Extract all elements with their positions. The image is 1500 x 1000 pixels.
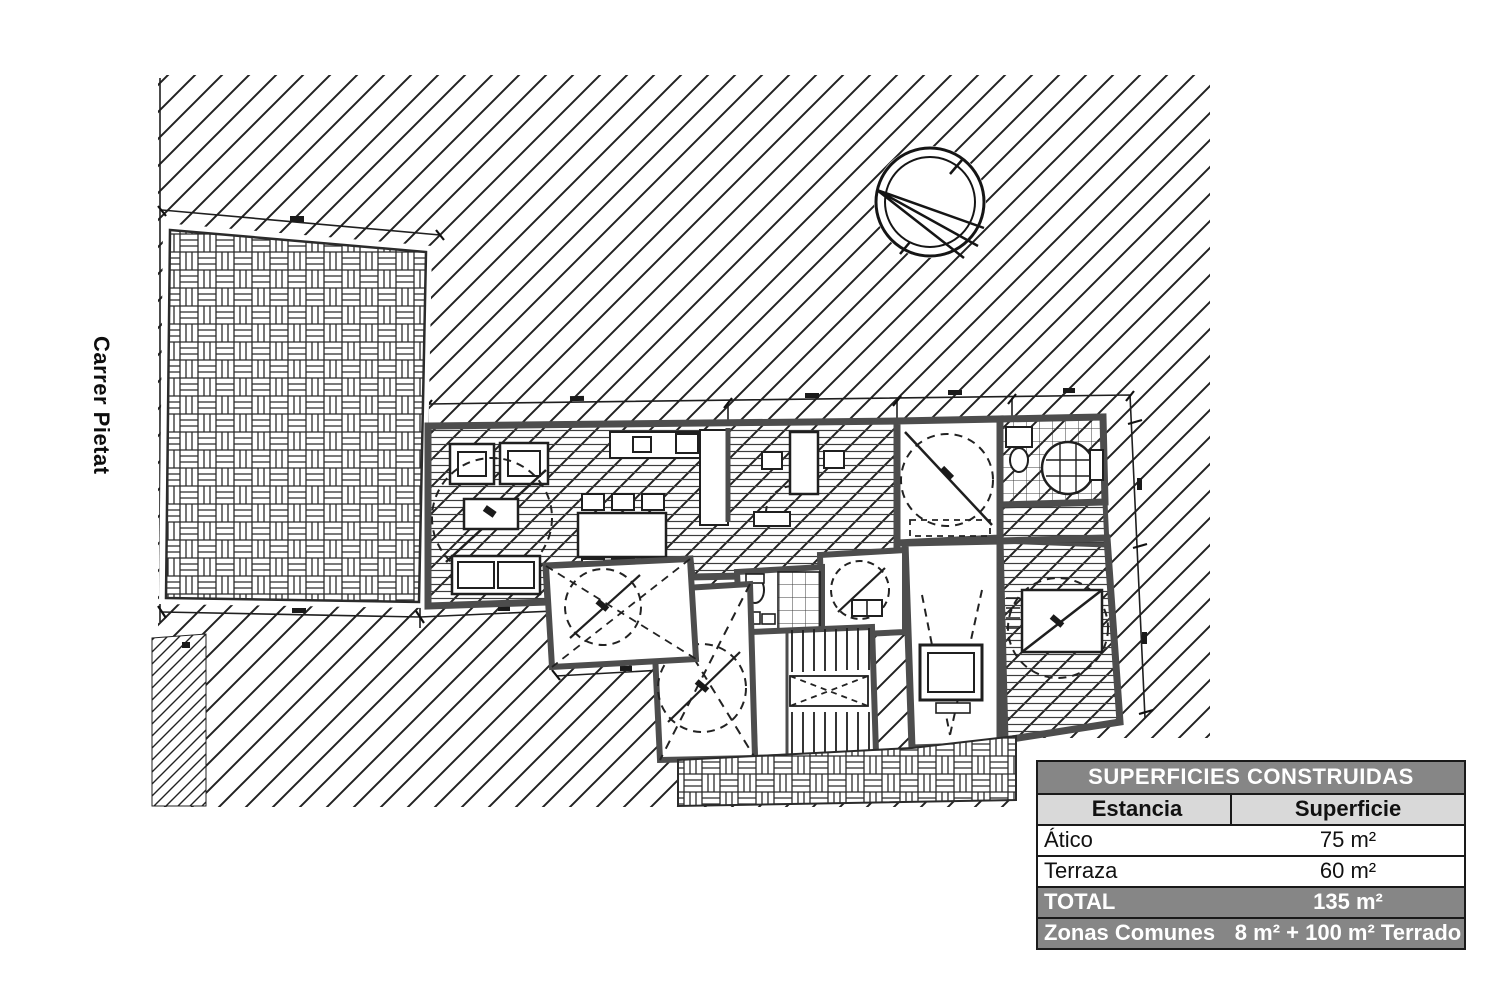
row-value: 8 m² + 100 m² Terrado: [1232, 919, 1464, 948]
stairwell: [750, 627, 876, 758]
areas-table-header-row: Estancia Superficie: [1038, 793, 1464, 824]
column-header-estancia: Estancia: [1038, 795, 1232, 824]
scanned-floor-plan-page: Carrer Pietat: [0, 0, 1500, 1000]
row-value: 135 m²: [1232, 888, 1464, 917]
dressing-room: [905, 541, 1000, 748]
table-row-atico: Ático 75 m²: [1038, 824, 1464, 855]
row-value: 60 m²: [1232, 857, 1464, 886]
row-value: 75 m²: [1232, 826, 1464, 855]
table-row-zonas-comunes: Zonas Comunes 8 m² + 100 m² Terrado: [1038, 917, 1464, 948]
row-name: Zonas Comunes: [1038, 919, 1232, 948]
north-arrow-icon: [874, 146, 986, 258]
bathroom-1: [1000, 417, 1105, 505]
street-label: Carrer Pietat: [89, 336, 114, 475]
bedroom-1: [897, 419, 1000, 543]
row-name: Ático: [1038, 826, 1232, 855]
hall: [820, 550, 905, 636]
areas-table-title: SUPERFICIES CONSTRUIDAS: [1038, 762, 1464, 793]
column-header-superficie: Superficie: [1232, 795, 1464, 824]
row-name: Terraza: [1038, 857, 1232, 886]
table-row-terraza: Terraza 60 m²: [1038, 855, 1464, 886]
table-row-total: TOTAL 135 m²: [1038, 886, 1464, 917]
row-name: TOTAL: [1038, 888, 1232, 917]
terrace-extension: [546, 559, 696, 667]
terrace-paving: [159, 223, 432, 608]
areas-table: SUPERFICIES CONSTRUIDAS Estancia Superfi…: [1036, 760, 1466, 950]
bedroom-2: [1000, 538, 1120, 740]
